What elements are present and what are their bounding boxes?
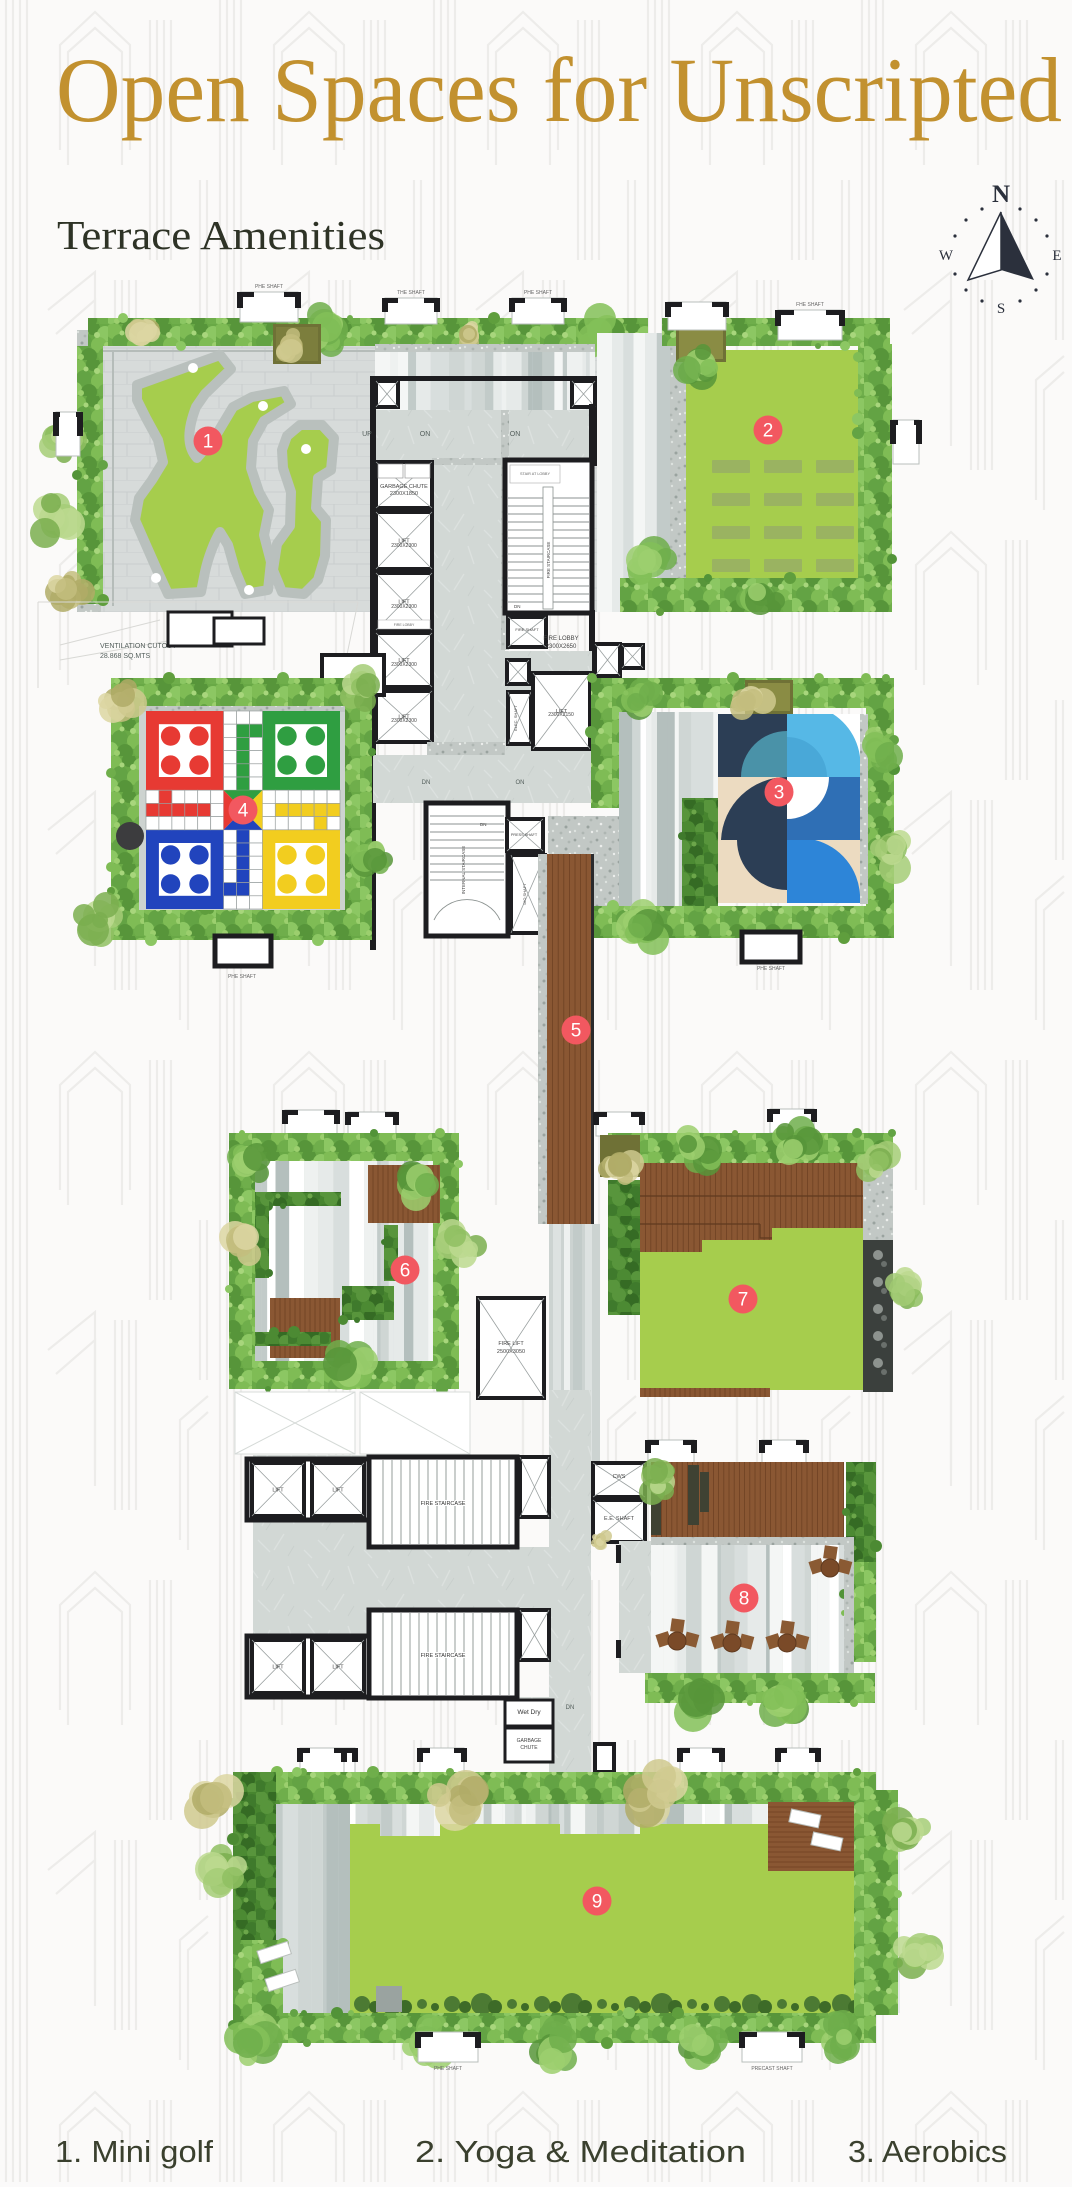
- svg-text:GARBAGE CHUTE: GARBAGE CHUTE: [380, 484, 428, 490]
- svg-text:E: E: [1052, 248, 1061, 264]
- svg-text:W: W: [939, 248, 954, 264]
- svg-text:6: 6: [400, 1261, 411, 1282]
- svg-text:INTERNAL STAIRCASE: INTERNAL STAIRCASE: [461, 846, 466, 895]
- svg-text:CHUTE: CHUTE: [520, 1745, 538, 1751]
- svg-text:E.E. SHAFT: E.E. SHAFT: [604, 1516, 635, 1522]
- svg-text:S: S: [997, 301, 1005, 317]
- svg-text:GARBAGE: GARBAGE: [517, 1738, 542, 1744]
- svg-text:UP: UP: [362, 431, 372, 438]
- svg-text:FIRE STAIRCASE: FIRE STAIRCASE: [421, 1653, 466, 1659]
- svg-text:2500X3050: 2500X3050: [497, 1349, 525, 1355]
- svg-text:PHE SHAFT: PHE SHAFT: [228, 974, 256, 980]
- svg-text:2300X2300: 2300X2300: [391, 718, 417, 724]
- svg-text:Wet Dry: Wet Dry: [517, 1709, 541, 1716]
- svg-text:PHE SHAFT: PHE SHAFT: [524, 290, 552, 296]
- svg-text:2. Yoga & Meditation: 2. Yoga & Meditation: [415, 2134, 746, 2169]
- svg-text:Terrace Amenities: Terrace Amenities: [57, 212, 385, 258]
- svg-text:DN: DN: [566, 1705, 575, 1711]
- svg-text:ON: ON: [420, 431, 431, 438]
- svg-text:PRECAST SHAFT: PRECAST SHAFT: [751, 2066, 792, 2072]
- svg-text:FIRE STAIRCASE: FIRE STAIRCASE: [421, 1501, 466, 1507]
- svg-text:N: N: [992, 181, 1010, 208]
- svg-text:DN: DN: [514, 604, 521, 609]
- svg-text:1: 1: [203, 432, 214, 453]
- svg-text:LIFT: LIFT: [332, 1488, 344, 1494]
- svg-text:9: 9: [592, 1892, 603, 1913]
- svg-text:ON: ON: [510, 431, 521, 438]
- svg-text:8: 8: [739, 1589, 750, 1610]
- svg-text:ON: ON: [516, 780, 525, 786]
- svg-text:PHE SHAFT: PHE SHAFT: [255, 284, 283, 290]
- svg-text:LIFT: LIFT: [272, 1488, 284, 1494]
- svg-text:2300X2650: 2300X2650: [546, 644, 577, 650]
- svg-text:DN: DN: [480, 822, 487, 827]
- svg-text:FIRE LIFT: FIRE LIFT: [498, 1341, 524, 1347]
- svg-text:DN: DN: [422, 780, 431, 786]
- svg-text:1. Mini golf: 1. Mini golf: [55, 2134, 213, 2169]
- svg-text:PHE SHAFT: PHE SHAFT: [434, 2066, 462, 2072]
- svg-text:FIRE LOBBY: FIRE LOBBY: [394, 623, 415, 627]
- svg-text:3: 3: [774, 783, 785, 804]
- svg-text:4: 4: [238, 801, 249, 822]
- svg-text:2: 2: [763, 421, 774, 442]
- svg-text:5: 5: [571, 1021, 582, 1042]
- svg-text:PRESS SHAFT: PRESS SHAFT: [511, 833, 538, 837]
- svg-text:3. Aerobics: 3. Aerobics: [848, 2134, 1007, 2169]
- svg-text:2300X2150: 2300X2150: [548, 712, 574, 718]
- svg-text:2300X2300: 2300X2300: [391, 604, 417, 610]
- svg-text:THE SHAFT: THE SHAFT: [397, 290, 425, 296]
- svg-text:FIRE STAIRCASE: FIRE STAIRCASE: [546, 542, 551, 579]
- svg-text:STAIR AT LOBBY: STAIR AT LOBBY: [520, 472, 550, 476]
- svg-text:FHE SHAFT: FHE SHAFT: [796, 302, 824, 308]
- svg-text:7: 7: [738, 1290, 749, 1311]
- svg-text:PHE SHAFT: PHE SHAFT: [757, 966, 785, 972]
- svg-text:2300X2300: 2300X2300: [391, 662, 417, 668]
- svg-text:FIRE LOBBY: FIRE LOBBY: [543, 636, 578, 642]
- svg-text:2300X1850: 2300X1850: [390, 491, 418, 497]
- svg-text:2300X2300: 2300X2300: [391, 543, 417, 549]
- svg-text:FIRE SHAFT: FIRE SHAFT: [515, 627, 539, 632]
- svg-text:ELEC. SHAFT: ELEC. SHAFT: [513, 705, 518, 731]
- svg-text:DIO SHAFT: DIO SHAFT: [522, 883, 527, 905]
- svg-text:VENTILATION CUTOUT: VENTILATION CUTOUT: [100, 643, 177, 650]
- svg-text:LIFT: LIFT: [332, 1665, 344, 1671]
- svg-text:Open Spaces for Unscripted: Open Spaces for Unscripted: [56, 39, 1062, 141]
- svg-text:28.868 SQ.MTS: 28.868 SQ.MTS: [100, 653, 151, 660]
- svg-text:LIFT: LIFT: [272, 1665, 284, 1671]
- svg-text:CWS: CWS: [613, 1474, 626, 1480]
